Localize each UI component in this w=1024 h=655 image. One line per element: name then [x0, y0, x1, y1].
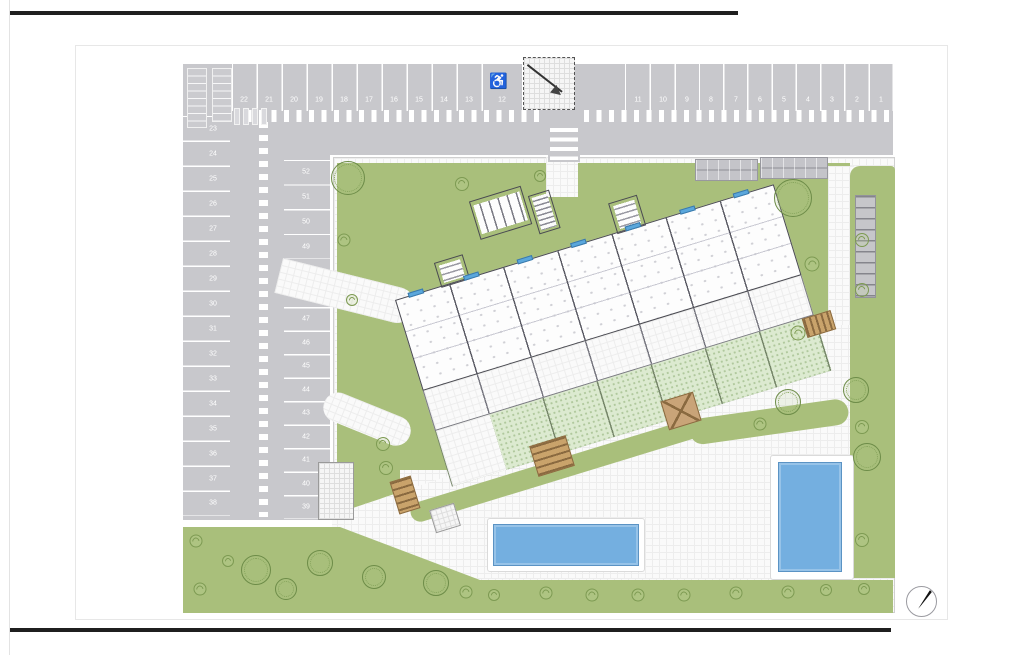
parking-stall-number: 44: [302, 387, 310, 394]
tree-icon: [275, 578, 297, 600]
tree-icon: [379, 461, 393, 475]
tree-icon: [678, 589, 691, 602]
tree-icon: [241, 555, 271, 585]
parking-stall-number: 21: [265, 97, 273, 104]
parking-stall-number: 26: [209, 201, 217, 208]
refuse-bin: [252, 108, 258, 125]
parking-stall-number: 41: [302, 457, 310, 464]
crosswalk-gap: [544, 109, 582, 123]
parking-stalls-22-13: [232, 64, 482, 111]
tree-icon: [346, 294, 358, 306]
parking-stall-number: 18: [340, 97, 348, 104]
site-ramp-east-1: [695, 159, 758, 181]
parking-stall-number: 12: [498, 97, 506, 104]
parking-stall-number: 6: [758, 97, 762, 104]
tree-icon: [791, 326, 806, 341]
parking-stall-number: 34: [209, 401, 217, 408]
tree-icon: [460, 586, 473, 599]
tree-icon: [820, 584, 832, 596]
wheelchair-icon: ♿: [489, 74, 508, 89]
tree-icon: [488, 589, 500, 601]
parking-stall-number: 32: [209, 351, 217, 358]
parking-stall-number: 17: [365, 97, 373, 104]
tree-icon: [774, 179, 812, 217]
title-bar-rule-bottom: [10, 628, 891, 632]
parking-stall-number: 10: [659, 97, 667, 104]
tree-icon: [307, 550, 333, 576]
parking-stall-number: 33: [209, 376, 217, 383]
tree-icon: [331, 161, 365, 195]
parking-stall-number: 28: [209, 251, 217, 258]
parking-stall-number: 37: [209, 476, 217, 483]
tree-icon: [540, 587, 553, 600]
storage-rooms: [469, 186, 532, 240]
parking-stall-number: 42: [302, 434, 310, 441]
ramp-arrowhead: [550, 85, 568, 102]
parking-stall-number: 39: [302, 504, 310, 511]
parking-stall-number: 50: [302, 219, 310, 226]
parking-stall-number: 30: [209, 301, 217, 308]
tree-icon: [338, 234, 351, 247]
page-edge-line: [9, 0, 10, 655]
tree-icon: [586, 589, 599, 602]
parking-stall-number: 19: [315, 97, 323, 104]
parking-stalls-11-10: [625, 64, 675, 111]
parking-stall-number: 4: [806, 97, 810, 104]
parking-stall-number: 29: [209, 276, 217, 283]
tree-icon: [782, 586, 795, 599]
parking-stall-number: 8: [709, 97, 713, 104]
parking-stall-number: 40: [302, 481, 310, 488]
road-center-dashed-line: [259, 122, 268, 517]
refuse-bin: [261, 108, 267, 125]
refuse-bin: [234, 108, 240, 125]
title-bar-rule-top: [10, 11, 738, 15]
parking-stall-number: 9: [685, 97, 689, 104]
bike-rack: [855, 195, 876, 298]
tree-icon: [775, 389, 801, 415]
parking-stall-number: 16: [390, 97, 398, 104]
parking-stall-number: 15: [415, 97, 423, 104]
tree-icon: [455, 177, 469, 191]
parking-stall-number: 27: [209, 226, 217, 233]
tree-icon: [805, 257, 820, 272]
tree-icon: [376, 437, 390, 451]
refuse-bin: [243, 108, 249, 125]
parking-stall-number: 45: [302, 363, 310, 370]
parking-stall-number: 46: [302, 340, 310, 347]
parking-stall-number: 1: [879, 97, 883, 104]
tree-icon: [632, 589, 645, 602]
tree-icon: [194, 583, 207, 596]
parking-stall-number: 43: [302, 410, 310, 417]
tree-icon: [534, 170, 546, 182]
parking-stall-number: 13: [465, 97, 473, 104]
parking-stall-number: 11: [634, 97, 641, 104]
parking-stall-number: 51: [302, 194, 310, 201]
parking-stall-number: 49: [302, 244, 310, 251]
parking-stall-number: 35: [209, 426, 217, 433]
parking-stalls-23-38: [183, 116, 230, 516]
parking-stall-number: 47: [302, 316, 310, 323]
parking-stall-number: 24: [209, 151, 217, 158]
crosswalk-stripes: [550, 128, 578, 160]
site-ramp-east-2: [760, 157, 828, 179]
parking-stall-number: 22: [240, 97, 248, 104]
tree-icon: [362, 565, 386, 589]
tree-icon: [855, 283, 869, 297]
parking-stall-number: 2: [855, 97, 859, 104]
pedestrian-crosswalk: [548, 126, 580, 162]
tree-icon: [843, 377, 869, 403]
parking-stall-number: 31: [209, 326, 217, 333]
tree-icon: [754, 418, 767, 431]
pool-2-water: [778, 462, 842, 572]
parking-stall-number: 5: [782, 97, 786, 104]
parking-stalls-9-1: [675, 64, 893, 111]
north-needle: [914, 590, 933, 609]
legend-table: [212, 68, 232, 122]
parking-stall-number: 20: [290, 97, 298, 104]
parking-stall-number: 14: [440, 97, 448, 104]
parking-stall-number: 38: [209, 500, 217, 507]
garage-ramp: [523, 57, 575, 110]
tree-icon: [855, 533, 869, 547]
tree-icon: [855, 233, 869, 247]
legend-table: [187, 68, 207, 128]
parking-stall-number: 7: [734, 97, 738, 104]
parking-stall-number: 52: [302, 169, 310, 176]
parking-stall-number: 25: [209, 176, 217, 183]
parking-stall-number: 3: [830, 97, 834, 104]
parking-stall-number: 23: [209, 126, 217, 133]
site-plan-drawing: ♿ 22212019181716151413121110987654321 23…: [0, 0, 1024, 655]
tree-icon: [853, 443, 881, 471]
north-arrow-icon: [906, 586, 937, 617]
tree-icon: [730, 587, 743, 600]
road-end-ramp: [318, 462, 354, 520]
tree-icon: [190, 535, 203, 548]
tree-icon: [855, 420, 869, 434]
tree-icon: [423, 570, 449, 596]
tree-icon: [222, 555, 234, 567]
pool-1-water: [493, 524, 639, 566]
parking-stall-number: 36: [209, 451, 217, 458]
tree-icon: [858, 583, 870, 595]
